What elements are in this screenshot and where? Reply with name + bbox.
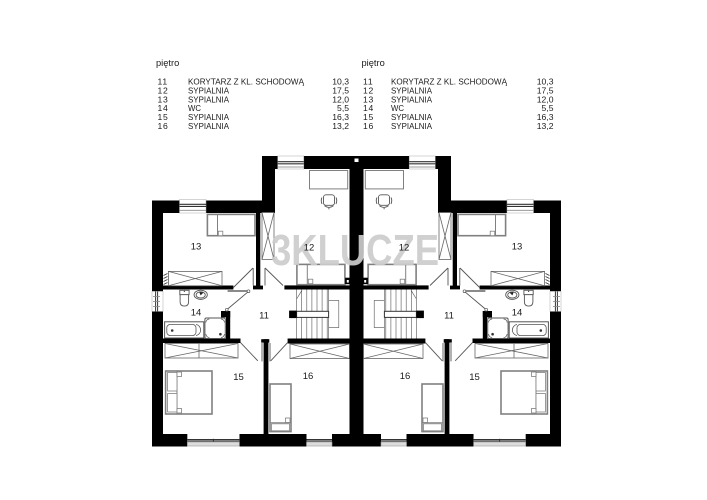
svg-text:3KLUCZE: 3KLUCZE <box>271 227 439 275</box>
svg-text:16: 16 <box>363 121 374 131</box>
svg-text:15: 15 <box>469 372 480 383</box>
svg-text:12: 12 <box>304 243 315 254</box>
svg-text:16: 16 <box>158 121 169 131</box>
svg-text:13: 13 <box>512 242 523 253</box>
svg-text:piętro: piętro <box>156 58 179 68</box>
svg-text:12: 12 <box>399 243 410 254</box>
svg-text:piętro: piętro <box>362 58 385 68</box>
svg-text:15: 15 <box>233 372 244 383</box>
svg-text:SYPIALNIA: SYPIALNIA <box>391 121 432 131</box>
svg-text:11: 11 <box>259 311 269 322</box>
svg-text:11: 11 <box>444 311 454 322</box>
svg-text:13,2: 13,2 <box>537 121 554 131</box>
svg-text:14: 14 <box>191 308 202 319</box>
svg-text:16: 16 <box>303 371 314 382</box>
svg-text:SYPIALNIA: SYPIALNIA <box>188 121 229 131</box>
svg-text:16: 16 <box>400 371 411 382</box>
svg-text:13: 13 <box>191 242 202 253</box>
svg-text:14: 14 <box>512 308 523 319</box>
svg-text:13,2: 13,2 <box>332 121 349 131</box>
